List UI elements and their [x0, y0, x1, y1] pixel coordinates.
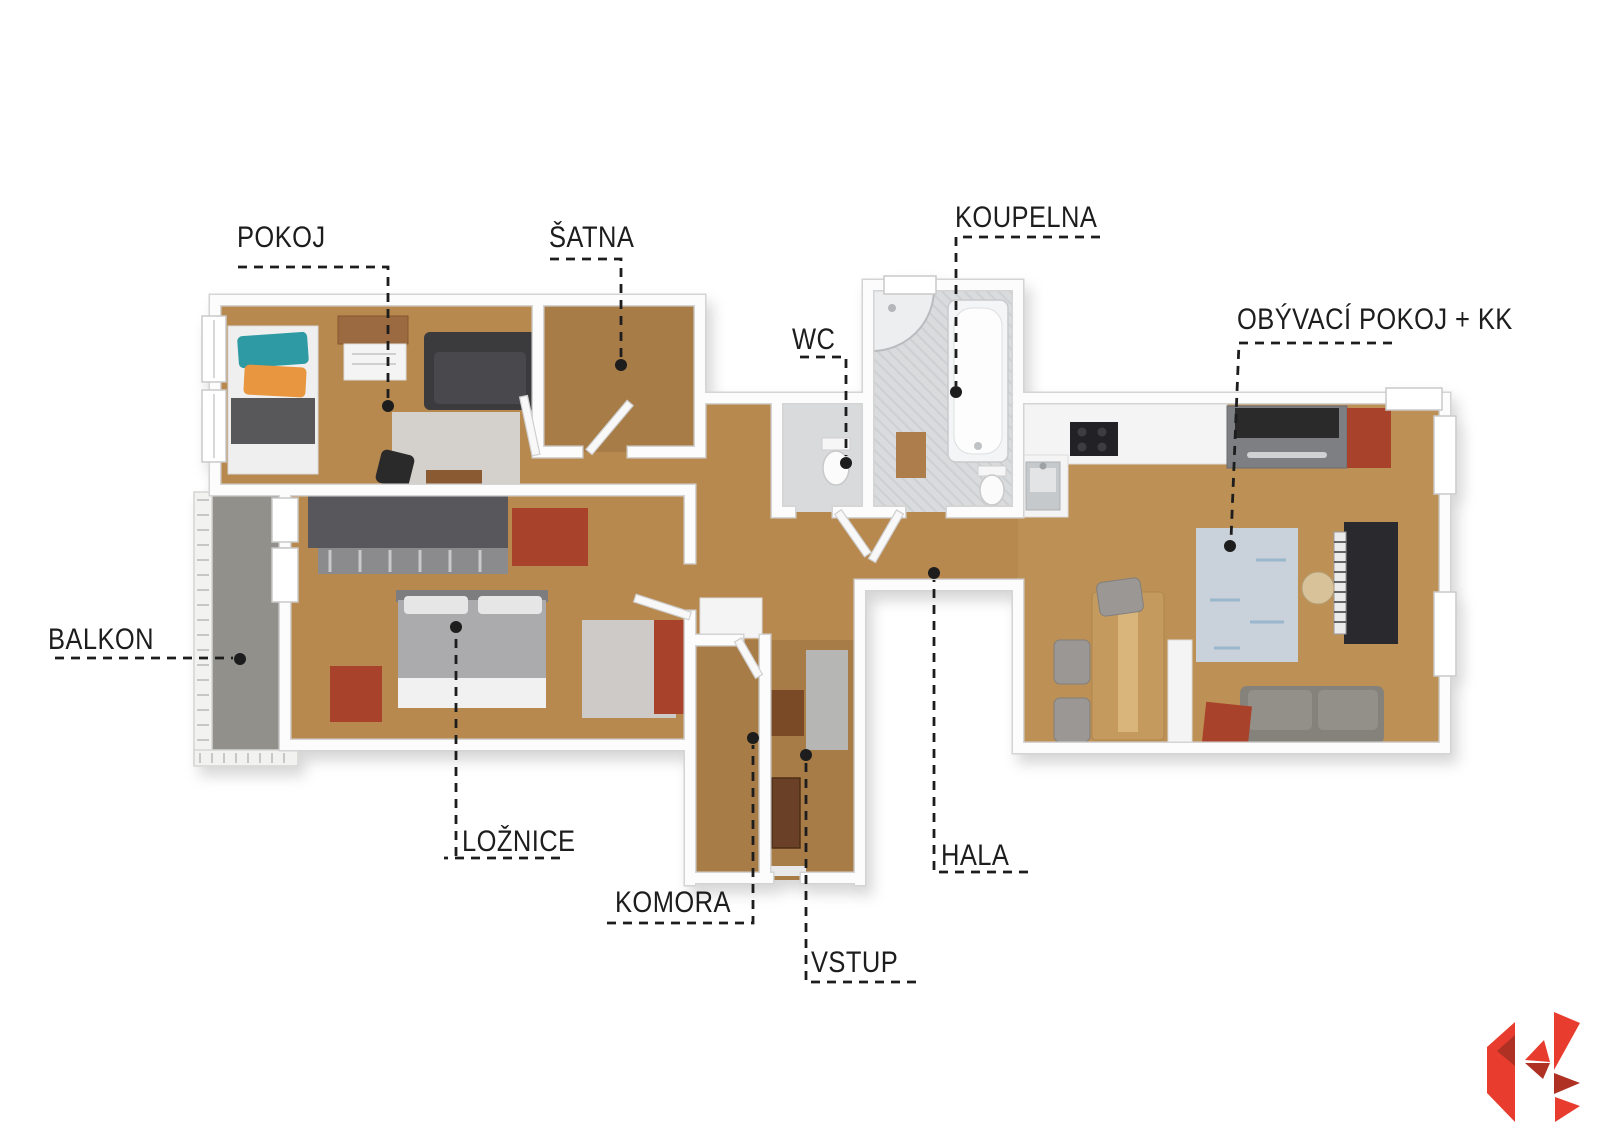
leader-dot-obyvaci: [1224, 540, 1236, 552]
label-wc: WC: [792, 325, 835, 355]
leader-dot-koupelna: [950, 386, 962, 398]
bed-pillow: [404, 596, 468, 614]
label-balkon: BALKON: [48, 625, 154, 655]
kitchen-hob: [1070, 422, 1118, 456]
double-bed-sheet: [398, 678, 546, 708]
bathtub-inner: [954, 308, 1002, 454]
dining-chair: [1096, 577, 1144, 617]
leader-dot-wc: [840, 457, 852, 469]
leader-dot-pokoj: [382, 400, 394, 412]
leader-dot-hala: [928, 567, 940, 579]
leader-dot-balkon: [234, 653, 246, 665]
living-window-right: [1434, 592, 1456, 676]
wc-floor: [777, 398, 868, 512]
bath-faucet: [974, 442, 982, 450]
k-triangles-logo: [1554, 1073, 1580, 1094]
wardrobe: [308, 496, 508, 548]
label-koupelna: KOUPELNA: [955, 203, 1097, 233]
kitchen-sink-basin: [1030, 468, 1056, 492]
leader-dot-satna: [615, 359, 627, 371]
side-table-red: [1202, 702, 1252, 747]
bath-toilet: [980, 475, 1004, 505]
nightstand-red: [330, 666, 382, 722]
entry-cabinet-brown: [770, 690, 804, 736]
hob-burner: [1078, 428, 1087, 437]
koupelna-window: [884, 276, 936, 294]
label-satna: ŠATNA: [549, 223, 634, 253]
piano: [1344, 522, 1398, 644]
table-runner: [1118, 600, 1138, 732]
living-window-right: [1434, 416, 1456, 494]
hob-burner: [1078, 443, 1087, 452]
leader-dot-loznice: [450, 621, 462, 633]
bench-red: [654, 620, 684, 714]
shower-drain: [888, 304, 896, 312]
living-rug: [1196, 528, 1298, 662]
range-cooktop: [1235, 408, 1339, 438]
sofa-cushion: [1248, 690, 1312, 730]
dark-sofa-seat: [434, 352, 526, 404]
sideboard-white: [1168, 640, 1192, 744]
bed-pillow: [478, 596, 542, 614]
balkon-railing-bottom: [194, 750, 298, 766]
kitchen-cabinet-red: [1347, 408, 1391, 468]
balkon-door-window: [272, 548, 298, 602]
leader-dot-komora: [747, 732, 759, 744]
balkon-railing: [194, 492, 212, 764]
balkon-window: [272, 498, 298, 542]
label-loznice: LOŽNICE: [462, 827, 576, 857]
hob-burner: [1098, 443, 1107, 452]
sofa-cushion: [1318, 690, 1378, 730]
bath-stool-wood: [896, 432, 926, 478]
k-triangles-logo: [1554, 1012, 1580, 1070]
k-triangles-logo: [1525, 1063, 1550, 1079]
hall-cabinet-white: [700, 598, 762, 638]
desk-brown: [338, 316, 408, 344]
piano-keys: [1334, 532, 1346, 634]
hob-burner: [1098, 428, 1107, 437]
teal-pillow: [237, 332, 309, 369]
dresser-red: [512, 508, 588, 566]
dresser-white: [344, 344, 406, 380]
brand-logo: [1487, 1012, 1580, 1122]
floorplan-canvas: [0, 0, 1599, 1130]
living-window-top: [1386, 388, 1442, 410]
range-handle: [1247, 452, 1327, 458]
satna-floor: [538, 300, 700, 452]
sink-faucet: [1040, 463, 1047, 470]
label-pokoj: POKOJ: [237, 223, 326, 253]
bed-blanket: [231, 398, 315, 444]
label-vstup: VSTUP: [811, 948, 898, 978]
label-komora: KOMORA: [615, 888, 731, 918]
k-triangles-logo: [1487, 1022, 1515, 1122]
dining-chair: [1054, 698, 1090, 742]
leader-dot-vstup: [800, 749, 812, 761]
orange-pillow: [243, 364, 306, 397]
floorplan-page: POKOJ ŠATNA KOUPELNA WC OBÝVACÍ POKOJ + …: [0, 0, 1599, 1130]
floorplan: [194, 276, 1456, 880]
label-obyvaci-pokoj: OBÝVACÍ POKOJ + KK: [1237, 305, 1513, 335]
label-hala: HALA: [941, 841, 1009, 871]
doormat: [806, 650, 848, 750]
front-door: [772, 778, 800, 848]
k-triangles-logo: [1555, 1097, 1580, 1122]
piano-stool: [1302, 572, 1334, 604]
k-triangles-logo: [1525, 1040, 1550, 1062]
dining-chair: [1054, 640, 1090, 684]
